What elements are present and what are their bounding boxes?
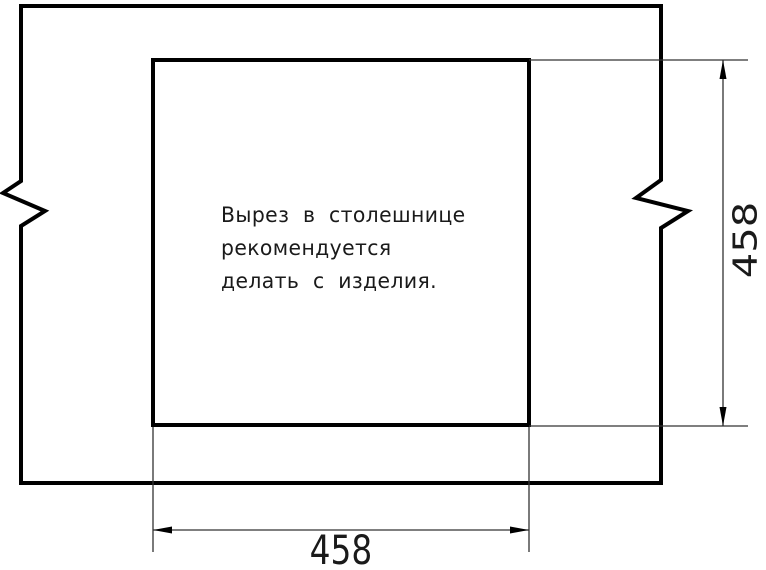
arrow-down-icon xyxy=(720,407,727,426)
drawing-canvas: Вырез в столешнице рекомендуется делать … xyxy=(0,0,766,570)
note-line-1: Вырез в столешнице xyxy=(221,199,466,232)
arrow-up-icon xyxy=(720,60,727,79)
arrow-right-icon xyxy=(510,527,529,534)
dimension-lines xyxy=(153,60,748,552)
note-line-2: рекомендуется xyxy=(221,232,466,265)
arrow-left-icon xyxy=(153,527,172,534)
note-line-3: делать с изделия. xyxy=(221,265,466,298)
dimension-value-width: 458 xyxy=(187,531,495,570)
dimension-value-height: 458 xyxy=(730,194,763,286)
note-text: Вырез в столешнице рекомендуется делать … xyxy=(221,199,466,298)
